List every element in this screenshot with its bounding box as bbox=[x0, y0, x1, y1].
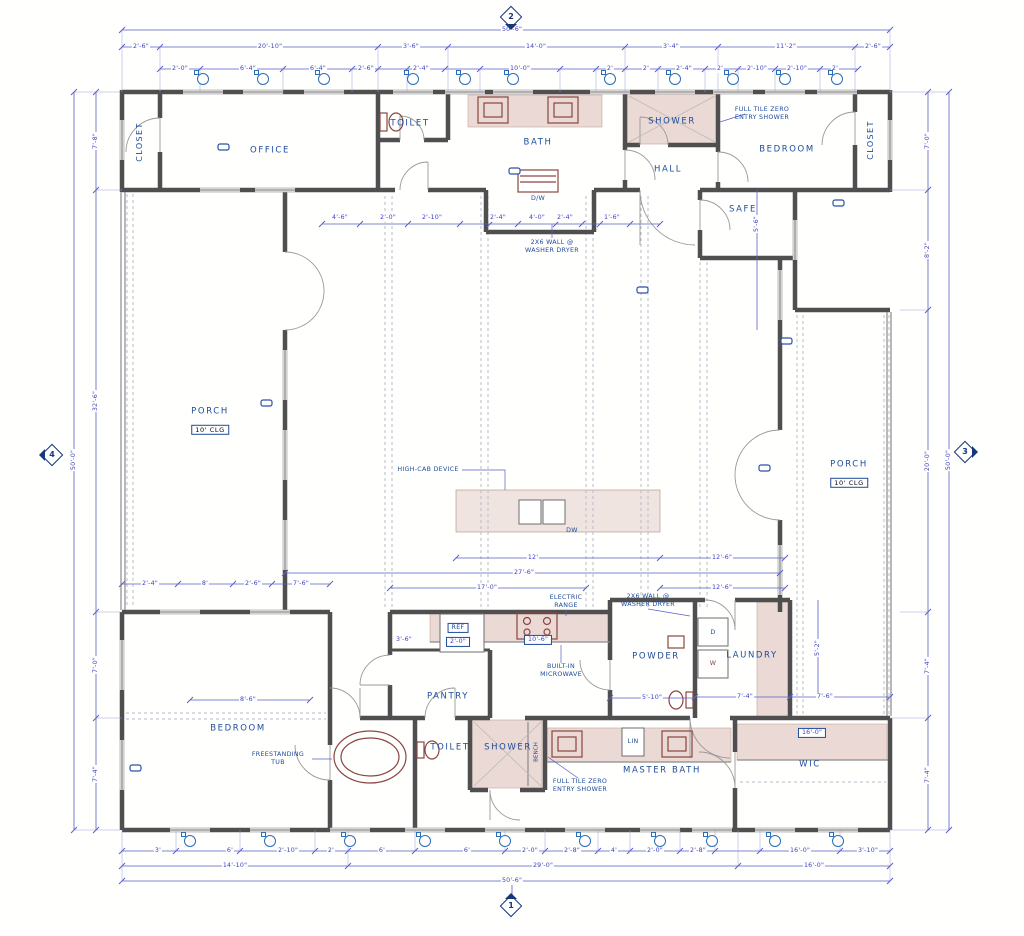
window-tag-icon bbox=[604, 73, 616, 85]
dim: 12'-6" bbox=[711, 554, 733, 562]
window-tag-icon bbox=[769, 835, 781, 847]
section-marker-arrow-icon bbox=[505, 24, 517, 36]
note-full-tile-shower-bottom: FULL TILE ZERO ENTRY SHOWER bbox=[553, 778, 607, 794]
dim: 2'-8" bbox=[689, 847, 707, 855]
note-built-in-microwave: BUILT-IN MICROWAVE bbox=[540, 663, 582, 679]
dim: 2'-10" bbox=[421, 214, 443, 222]
porch-left-ceiling: 10' CLG bbox=[191, 425, 229, 435]
window-tag-icon bbox=[318, 73, 330, 85]
window-tag-icon bbox=[184, 835, 196, 847]
room-master-bath: MASTER BATH bbox=[623, 765, 701, 776]
dim: 27'-6" bbox=[513, 569, 535, 577]
dim: 8' bbox=[201, 580, 209, 588]
dim: 6' bbox=[378, 847, 386, 855]
room-hall: HALL bbox=[654, 164, 682, 175]
window-tag-icon bbox=[419, 835, 431, 847]
room-shower-top: SHOWER bbox=[648, 116, 696, 127]
dim: 2'-0" bbox=[379, 214, 397, 222]
labels-layer: CLOSETOFFICETOILETBATHSHOWERHALLBEDROOMC… bbox=[0, 0, 1024, 936]
dim: 2'-4" bbox=[489, 214, 507, 222]
dim: 6' bbox=[226, 847, 234, 855]
dim: 16'-0" bbox=[789, 847, 811, 855]
room-toilet-bottom: TOILET bbox=[430, 742, 469, 753]
dim: 2'-8" bbox=[563, 847, 581, 855]
window-tag-icon bbox=[499, 835, 511, 847]
dim: 7'-4" bbox=[924, 657, 932, 675]
dim: 20'-10" bbox=[257, 43, 283, 51]
dim: 3'-4" bbox=[662, 43, 680, 51]
room-powder: POWDER bbox=[632, 651, 680, 662]
dim: 2' bbox=[327, 847, 335, 855]
room-wic: WIC bbox=[799, 759, 821, 770]
dim: 3' bbox=[154, 847, 162, 855]
dim: 7'-8" bbox=[92, 132, 100, 150]
note-high-cab: HIGH-CAB DEVICE bbox=[397, 466, 458, 474]
label-dishwasher: DW bbox=[566, 527, 578, 535]
window-tag-icon bbox=[197, 73, 209, 85]
dim: 2'-0" bbox=[521, 847, 539, 855]
window-tag-icon bbox=[831, 73, 843, 85]
dim: 8'-2" bbox=[924, 241, 932, 259]
window-tag-icon bbox=[669, 73, 681, 85]
window-tag-icon bbox=[459, 73, 471, 85]
window-tag-icon bbox=[264, 835, 276, 847]
dim: 2'-6" bbox=[864, 43, 882, 51]
dim: 2' bbox=[716, 65, 724, 73]
dim: 2'-10" bbox=[277, 847, 299, 855]
room-toilet-top: TOILET bbox=[390, 118, 429, 129]
room-office: OFFICE bbox=[250, 145, 290, 156]
room-closet-top-right: CLOSET bbox=[866, 120, 876, 159]
dim: 50'-6" bbox=[501, 877, 523, 885]
dim: 7'-0" bbox=[92, 656, 100, 674]
label-washer: W bbox=[710, 660, 717, 668]
room-porch-right: PORCH bbox=[830, 459, 868, 470]
dim-ref: 2'-0" bbox=[446, 637, 470, 647]
dim: 6' bbox=[463, 847, 471, 855]
dim: 2'-4" bbox=[412, 65, 430, 73]
label-linen: LIN bbox=[628, 738, 639, 746]
dim: 32'-6" bbox=[92, 390, 100, 412]
room-bedroom-bottom-left: BEDROOM bbox=[210, 723, 266, 734]
dim: 17'-0" bbox=[476, 584, 498, 592]
window-tag-icon bbox=[832, 835, 844, 847]
section-marker-top: 2 bbox=[499, 5, 523, 29]
dim: 5'-10" bbox=[641, 694, 663, 702]
window-tag-icon bbox=[727, 73, 739, 85]
dim: 4'-0" bbox=[528, 214, 546, 222]
dim: 2' bbox=[642, 65, 650, 73]
note-freestanding-tub: FREESTANDING TUB bbox=[252, 751, 304, 767]
dim: 3'-6" bbox=[402, 43, 420, 51]
note-electric-range: ELECTRIC RANGE bbox=[550, 594, 583, 610]
dim: 3'-6" bbox=[395, 636, 413, 644]
dim: 2'-0" bbox=[171, 65, 189, 73]
window-tag-icon bbox=[654, 835, 666, 847]
section-marker-number: 3 bbox=[953, 447, 977, 456]
dim: 4'-6" bbox=[331, 214, 349, 222]
dim: 7'-4" bbox=[92, 765, 100, 783]
dim: 10'-6" bbox=[524, 635, 552, 645]
section-marker-number: 4 bbox=[40, 450, 64, 459]
section-marker-number: 1 bbox=[499, 901, 523, 910]
dim: 2'-0" bbox=[646, 847, 664, 855]
label-bench: BENCH bbox=[533, 742, 540, 762]
dim: 16'-0" bbox=[803, 862, 825, 870]
section-marker-left: 4 bbox=[40, 443, 64, 467]
dim: 10'-0" bbox=[509, 65, 531, 73]
dim: 4' bbox=[610, 847, 618, 855]
room-bedroom-top-right: BEDROOM bbox=[759, 144, 815, 155]
note-full-tile-shower-top: FULL TILE ZERO ENTRY SHOWER bbox=[735, 106, 789, 122]
dim: 8'-6" bbox=[239, 696, 257, 704]
dim: 1'-6" bbox=[603, 214, 621, 222]
room-closet-top-left: CLOSET bbox=[135, 122, 145, 161]
dim: 2'-4" bbox=[675, 65, 693, 73]
room-laundry: LAUNDRY bbox=[726, 650, 778, 661]
section-marker-right: 3 bbox=[953, 440, 977, 464]
dim: 16'-0" bbox=[798, 728, 826, 738]
dim: 14'-0" bbox=[525, 43, 547, 51]
room-shower-bottom: SHOWER bbox=[484, 742, 532, 753]
dim: 2'-10" bbox=[746, 65, 768, 73]
dim: 2'-4" bbox=[141, 580, 159, 588]
label-dryer: D bbox=[710, 629, 715, 637]
room-safe: SAFE bbox=[729, 204, 757, 215]
dim: 29'-0" bbox=[532, 862, 554, 870]
window-tag-icon bbox=[407, 73, 419, 85]
note-washer-dryer-wall-top: 2X6 WALL @ WASHER DRYER bbox=[525, 239, 579, 255]
window-tag-icon bbox=[579, 835, 591, 847]
window-tag-icon bbox=[344, 835, 356, 847]
dim: 20'-0" bbox=[924, 450, 932, 472]
dim: 2'-6" bbox=[357, 65, 375, 73]
room-porch-left: PORCH bbox=[191, 406, 229, 417]
dim: 2'-10" bbox=[786, 65, 808, 73]
dim: 50'-0" bbox=[945, 449, 953, 471]
dim: 7'-4" bbox=[924, 766, 932, 784]
note-washer-dryer-wall-laundry: 2X6 WALL @ WASHER DRYER bbox=[621, 593, 675, 609]
room-pantry: PANTRY bbox=[427, 691, 469, 702]
dim: 7'-6" bbox=[292, 580, 310, 588]
window-tag-icon bbox=[779, 73, 791, 85]
dim: 14'-10" bbox=[222, 862, 248, 870]
label-washer-dryer-stack: D/W bbox=[531, 195, 545, 203]
window-tag-icon bbox=[706, 835, 718, 847]
floor-plan-sheet: CLOSETOFFICETOILETBATHSHOWERHALLBEDROOMC… bbox=[0, 0, 1024, 936]
dim: 2'-6" bbox=[244, 580, 262, 588]
dim: 50'-0" bbox=[70, 449, 78, 471]
dim: 12' bbox=[527, 554, 539, 562]
dim: 5'-2" bbox=[814, 639, 822, 657]
section-marker-arrow-icon bbox=[505, 887, 517, 899]
dim: 7'-4" bbox=[736, 693, 754, 701]
dim: 7'-6" bbox=[816, 693, 834, 701]
section-marker-bottom: 1 bbox=[499, 894, 523, 918]
dim: 2' bbox=[606, 65, 614, 73]
dim: 2'-4" bbox=[556, 214, 574, 222]
room-bath: BATH bbox=[524, 137, 553, 148]
window-tag-icon bbox=[507, 73, 519, 85]
dim: 11'-2" bbox=[775, 43, 797, 51]
section-marker-number: 2 bbox=[499, 12, 523, 21]
dim: 3'-10" bbox=[857, 847, 879, 855]
dim: 7'-0" bbox=[924, 132, 932, 150]
dim: 12'-6" bbox=[711, 584, 733, 592]
label-ref: REF bbox=[448, 623, 469, 633]
window-tag-icon bbox=[257, 73, 269, 85]
dim: 2'-6" bbox=[132, 43, 150, 51]
dim: 5'-6" bbox=[753, 215, 761, 233]
porch-right-ceiling: 10' CLG bbox=[830, 478, 868, 488]
